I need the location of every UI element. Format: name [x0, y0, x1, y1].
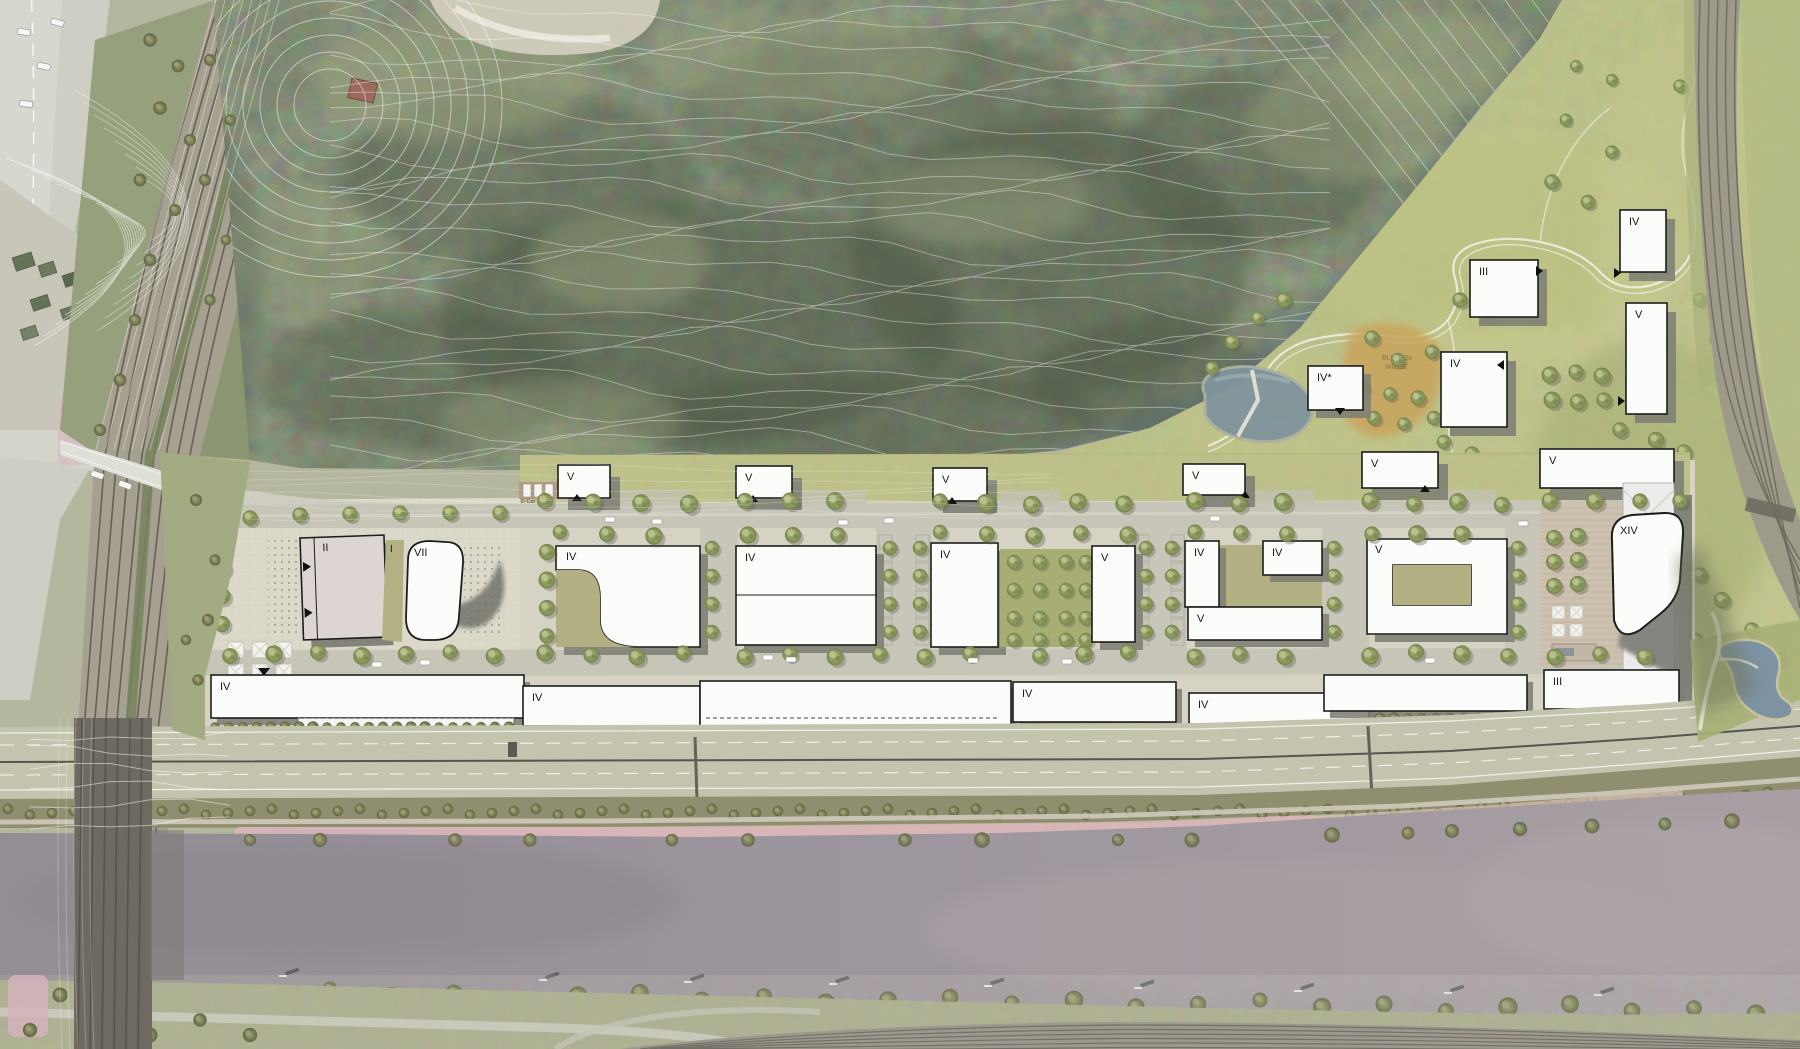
svg-text:V: V — [1375, 544, 1383, 556]
svg-text:I: I — [390, 544, 393, 555]
svg-text:IV: IV — [1198, 699, 1209, 711]
svg-text:XIV: XIV — [1620, 525, 1638, 537]
svg-text:IV: IV — [532, 692, 543, 704]
svg-text:II: II — [322, 542, 329, 554]
svg-text:V: V — [567, 471, 575, 483]
svg-text:V: V — [1197, 613, 1205, 625]
svg-text:IV: IV — [220, 681, 231, 693]
svg-text:IV: IV — [1450, 358, 1461, 370]
svg-text:IV: IV — [1629, 216, 1640, 228]
svg-text:V: V — [1635, 309, 1643, 321]
svg-text:IV: IV — [1272, 547, 1283, 559]
svg-text:V: V — [1371, 458, 1379, 470]
svg-text:V: V — [942, 474, 950, 486]
svg-text:III: III — [1479, 266, 1488, 278]
svg-text:III: III — [1553, 676, 1562, 688]
svg-text:IV: IV — [566, 551, 577, 563]
svg-text:V: V — [1549, 455, 1557, 467]
svg-text:V: V — [1101, 552, 1109, 564]
svg-text:VII: VII — [414, 547, 427, 559]
svg-text:IV: IV — [940, 549, 951, 561]
svg-text:V: V — [1192, 470, 1200, 482]
svg-text:IV*: IV* — [1317, 372, 1332, 384]
svg-text:IV: IV — [1194, 547, 1205, 559]
svg-text:IV: IV — [745, 552, 756, 564]
svg-text:IV: IV — [1022, 688, 1033, 700]
svg-text:V: V — [745, 472, 753, 484]
